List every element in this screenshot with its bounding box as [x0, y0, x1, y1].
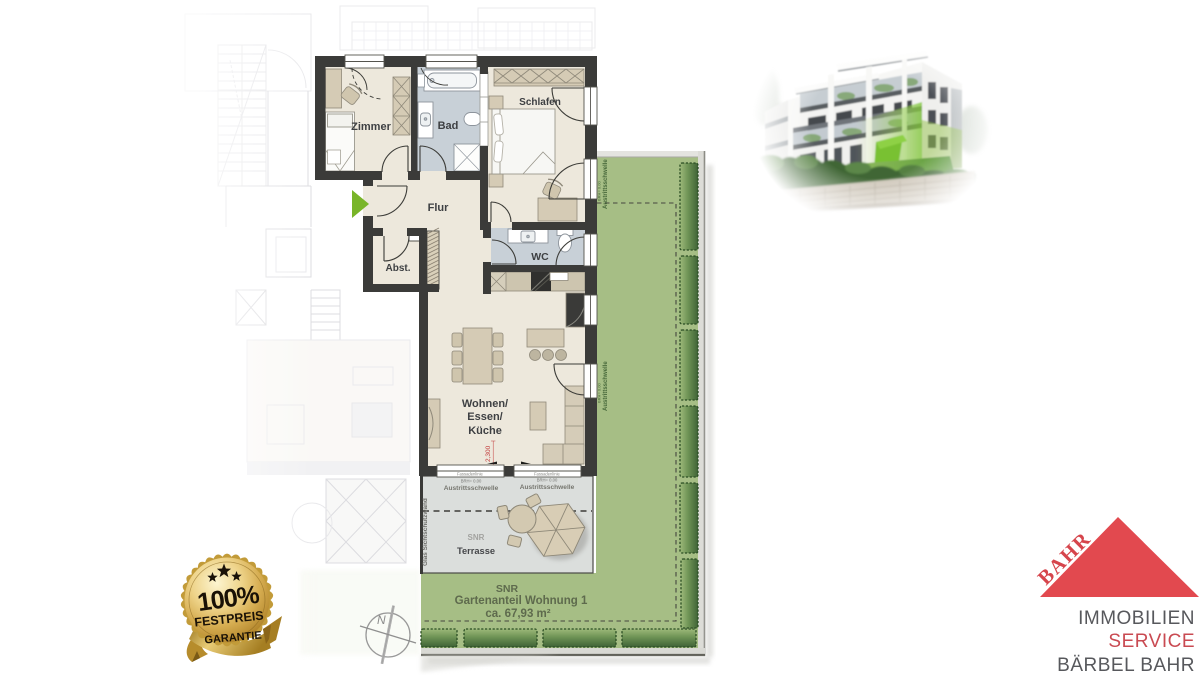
svg-text:SNR: SNR — [468, 533, 485, 542]
svg-text:Austrittsschwelle: Austrittsschwelle — [444, 485, 499, 492]
svg-text:2,300: 2,300 — [485, 445, 492, 462]
svg-text:Wohnen/: Wohnen/ — [462, 398, 508, 410]
svg-text:Schlafen: Schlafen — [519, 97, 561, 108]
svg-text:IMMOBILIEN: IMMOBILIEN — [1078, 608, 1195, 629]
svg-text:Fassadenlinie: Fassadenlinie — [457, 472, 484, 477]
svg-text:Küche: Küche — [468, 425, 502, 437]
svg-text:Abst.: Abst. — [386, 263, 411, 274]
svg-text:Bad: Bad — [438, 120, 459, 132]
svg-text:Fassadenlinie: Fassadenlinie — [534, 472, 561, 477]
svg-text:WC: WC — [531, 251, 549, 263]
svg-text:BRH= 0.00: BRH= 0.00 — [537, 478, 558, 483]
svg-text:Terrasse: Terrasse — [457, 546, 495, 556]
svg-text:Austrittsschwelle: Austrittsschwelle — [603, 159, 609, 209]
svg-text:SERVICE: SERVICE — [1108, 631, 1195, 652]
svg-text:Glas Sichtschutzwand: Glas Sichtschutzwand — [422, 498, 429, 566]
svg-text:Austrittsschwelle: Austrittsschwelle — [603, 361, 609, 411]
svg-text:SNR: SNR — [496, 583, 519, 595]
svg-text:Gartenanteil Wohnung 1: Gartenanteil Wohnung 1 — [455, 595, 588, 607]
svg-text:BRH= 0.00: BRH= 0.00 — [461, 479, 482, 484]
svg-text:Essen/: Essen/ — [467, 411, 502, 423]
svg-text:Flur: Flur — [428, 202, 449, 214]
svg-text:Austrittsschwelle: Austrittsschwelle — [520, 484, 575, 491]
svg-text:ca. 67,93 m²: ca. 67,93 m² — [485, 608, 550, 620]
svg-text:BÄRBEL BAHR: BÄRBEL BAHR — [1057, 655, 1195, 675]
svg-text:N: N — [377, 613, 386, 627]
svg-text:Zimmer: Zimmer — [351, 121, 391, 133]
